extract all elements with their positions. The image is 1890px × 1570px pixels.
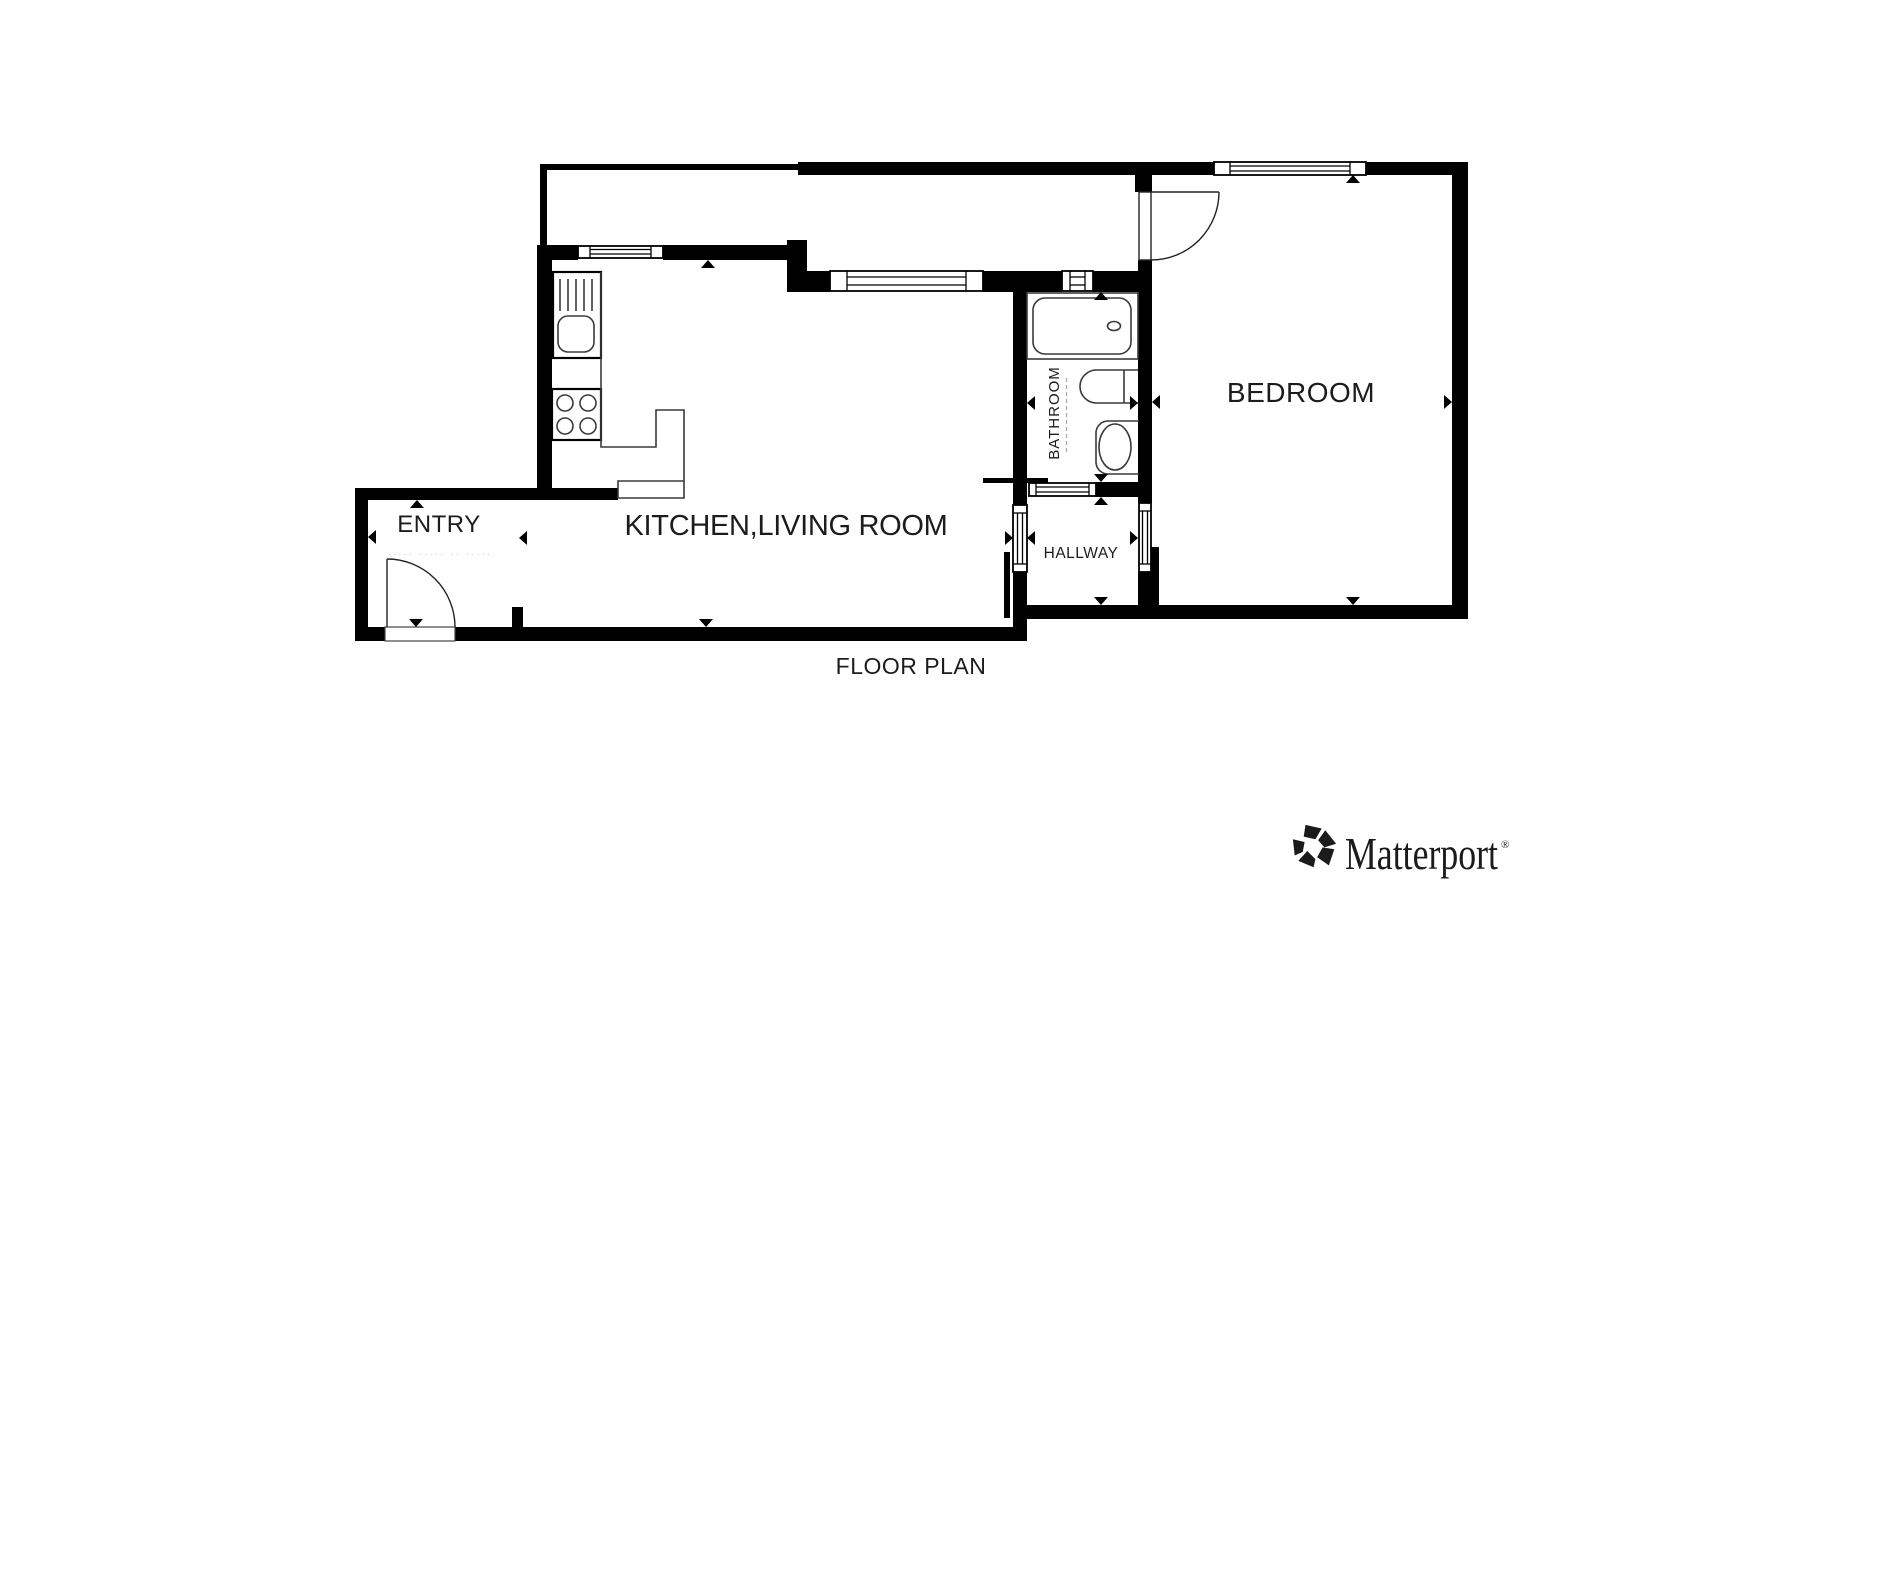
wall-segment — [807, 271, 830, 292]
matterport-logo-icon — [1293, 825, 1336, 867]
marker-arrow — [1444, 395, 1452, 409]
bedroom-door-leaf — [1139, 192, 1151, 260]
marker-arrow — [1152, 395, 1160, 409]
marker-arrow — [699, 619, 713, 627]
marker-arrow — [1094, 474, 1108, 482]
kitchen-counter — [601, 272, 684, 498]
marker-arrow — [410, 500, 424, 508]
wall-segment — [663, 245, 787, 260]
hallway-right-doorway — [1139, 503, 1151, 572]
kitchen-window — [578, 246, 663, 258]
bathroom-doorway — [1029, 483, 1096, 496]
marker-arrow — [701, 260, 715, 268]
hallway-right-door-leaf — [1151, 547, 1159, 612]
marker-arrow — [1027, 396, 1035, 410]
marker-arrow — [409, 619, 423, 627]
matterport-wordmark: Matterport — [1345, 828, 1498, 879]
wall-segment — [1135, 162, 1152, 192]
wall-segment — [787, 240, 807, 292]
entry-door — [385, 559, 455, 641]
floor-plan-drawing: ENTRY KITCHEN,LIVING ROOM BATHROOM HALLW… — [0, 0, 1890, 1570]
floor-plan-caption: FLOOR PLAN — [836, 653, 987, 679]
stove — [552, 389, 601, 440]
marker-arrow — [1346, 597, 1360, 605]
kitchen-living-label: KITCHEN,LIVING ROOM — [625, 510, 948, 542]
matterport-branding: Matterport ® — [1293, 825, 1509, 879]
wall-segment — [798, 162, 1215, 175]
bedroom-window — [1214, 162, 1366, 175]
bathroom-fixtures — [1027, 293, 1139, 474]
bedroom-door-arc — [1151, 192, 1219, 260]
hallway-left-doorway — [1013, 505, 1027, 572]
living-room-window — [830, 271, 983, 291]
marker-arrow — [1005, 531, 1013, 545]
wall-segment — [355, 488, 618, 500]
bathroom-sink — [1080, 370, 1138, 403]
registered-trademark-icon: ® — [1501, 839, 1509, 851]
marker-arrow — [1346, 175, 1360, 183]
bathroom-window — [1062, 271, 1093, 291]
wall-segment — [1138, 572, 1152, 605]
wall-segment — [1013, 271, 1027, 505]
bathtub — [1027, 293, 1138, 359]
wall-segment — [1452, 162, 1468, 619]
hallway-label: HALLWAY — [1044, 545, 1119, 562]
wall-segment — [1138, 260, 1152, 503]
kitchen-fixtures — [552, 272, 684, 498]
bathroom-door-leaf — [983, 478, 1048, 483]
faint-note: ····· ····· ·· ····· — [388, 549, 493, 560]
marker-arrow — [1130, 396, 1138, 410]
wall-segment — [540, 164, 802, 170]
marker-arrow — [1094, 597, 1108, 605]
bathroom-label: BATHROOM — [1046, 366, 1063, 460]
entry-door-opening — [385, 627, 455, 641]
entry-label: ENTRY — [397, 511, 480, 538]
bedroom-door — [1139, 192, 1219, 260]
wall-segment — [537, 245, 552, 490]
bedroom-label: BEDROOM — [1227, 377, 1375, 408]
floor-plan-page: ENTRY KITCHEN,LIVING ROOM BATHROOM HALLW… — [0, 0, 1890, 1570]
marker-arrow — [1094, 497, 1108, 505]
entry-door-arc — [387, 559, 455, 627]
marker-arrow — [1130, 531, 1138, 545]
wall-segment — [355, 488, 368, 641]
wall-segment — [455, 627, 1027, 641]
kitchen-sink — [553, 272, 601, 358]
wall-segment — [1013, 605, 1468, 619]
wall-segment — [540, 164, 547, 246]
marker-arrow — [519, 531, 527, 545]
marker-arrow — [368, 530, 376, 544]
hallway-left-door-leaf — [1004, 552, 1010, 618]
wall-segment — [512, 607, 523, 627]
wall-segment — [355, 627, 385, 641]
toilet — [1096, 421, 1139, 474]
marker-arrow — [1027, 531, 1035, 545]
